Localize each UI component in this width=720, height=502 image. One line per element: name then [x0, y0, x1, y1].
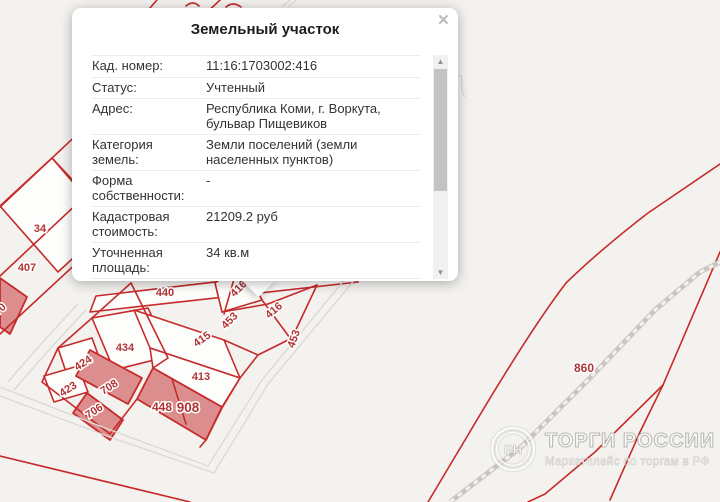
cadastral-map-app: 3440770440416453416453415434413424708423… [0, 0, 720, 502]
info-row-value: Земли поселений (земли населенных пункто… [206, 138, 420, 167]
popup-scrollbar[interactable]: ▲ ▼ [433, 55, 448, 279]
parcel-label: 908 [177, 400, 200, 415]
parcel-label: 416 [263, 300, 285, 321]
parcel-label: 453 [285, 328, 303, 349]
info-row-label: Категория земель: [92, 138, 198, 167]
parcel-label: 407 [18, 262, 36, 274]
popup-title: Земельный участок [72, 21, 458, 38]
parcel-label: 860 [574, 361, 594, 375]
info-row: Кадастровая стоимость:21209.2 руб [92, 207, 420, 243]
info-row-label: Кад. номер: [92, 59, 198, 74]
scroll-up-icon[interactable]: ▲ [433, 55, 448, 68]
info-row-label: Адрес: [92, 102, 198, 131]
parcel-label: 440 [156, 287, 174, 299]
info-row-value: - [206, 174, 420, 203]
info-row-label: Статус: [92, 81, 198, 96]
parcel-attributes-list: Кад. номер:11:16:1703002:416Статус:Учтен… [92, 55, 420, 282]
info-row: Адрес:Республика Коми, г. Воркута, бульв… [92, 99, 420, 135]
info-row-value: Учтенный [206, 81, 420, 96]
parcel-label: 453 [219, 310, 240, 331]
info-row-value: 21209.2 руб [206, 210, 420, 239]
info-row-label: Уточненная площадь: [92, 246, 198, 275]
info-row: Категория земель:Земли поселений (земли … [92, 135, 420, 171]
parcel-label: 448 [152, 400, 172, 414]
info-row-value: 34 кв.м [206, 246, 420, 275]
info-row: Кад. номер:11:16:1703002:416 [92, 56, 420, 78]
parcel-label: 413 [192, 371, 210, 383]
info-row-label: Форма собственности: [92, 174, 198, 203]
close-icon[interactable]: × [438, 11, 449, 30]
info-row-value: 11:16:1703002:416 [206, 59, 420, 74]
info-row: Статус:Учтенный [92, 78, 420, 100]
info-row: Уточненная площадь:34 кв.м [92, 243, 420, 279]
parcel-label: 34 [34, 223, 47, 235]
parcel-info-popup: × Земельный участок Кад. номер:11:16:170… [72, 8, 458, 281]
info-row: Разрешенноедля размещения временного [92, 279, 420, 282]
parcel-label: 434 [116, 342, 135, 354]
info-row: Форма собственности:- [92, 171, 420, 207]
scroll-down-icon[interactable]: ▼ [433, 266, 448, 279]
scrollbar-thumb[interactable] [434, 69, 447, 191]
info-row-label: Кадастровая стоимость: [92, 210, 198, 239]
info-row-value: Республика Коми, г. Воркута, бульвар Пищ… [206, 102, 420, 131]
railroad-line [450, 262, 720, 502]
